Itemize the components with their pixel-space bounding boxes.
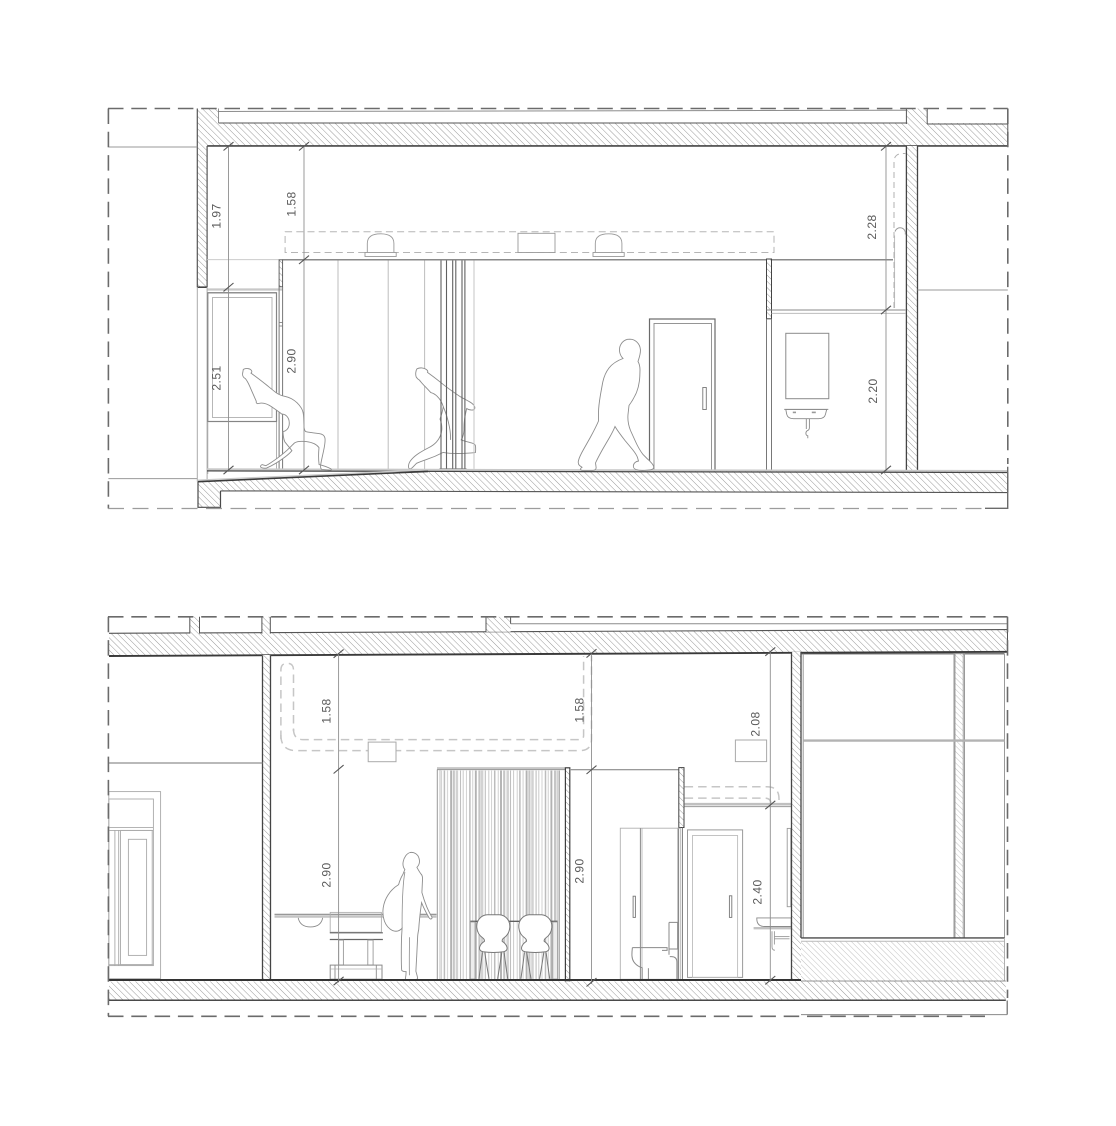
svg-text:2.20: 2.20 <box>866 378 880 403</box>
svg-text:2.90: 2.90 <box>285 348 299 373</box>
svg-text:2.51: 2.51 <box>210 365 224 390</box>
svg-text:2.08: 2.08 <box>749 711 763 736</box>
svg-text:2.40: 2.40 <box>751 879 765 904</box>
svg-text:2.28: 2.28 <box>865 214 879 239</box>
svg-text:1.58: 1.58 <box>320 698 334 723</box>
svg-text:1.58: 1.58 <box>285 191 299 216</box>
svg-text:1.58: 1.58 <box>573 697 587 722</box>
svg-text:2.90: 2.90 <box>320 862 334 887</box>
svg-text:2.90: 2.90 <box>573 858 587 883</box>
svg-text:1.97: 1.97 <box>210 203 224 228</box>
